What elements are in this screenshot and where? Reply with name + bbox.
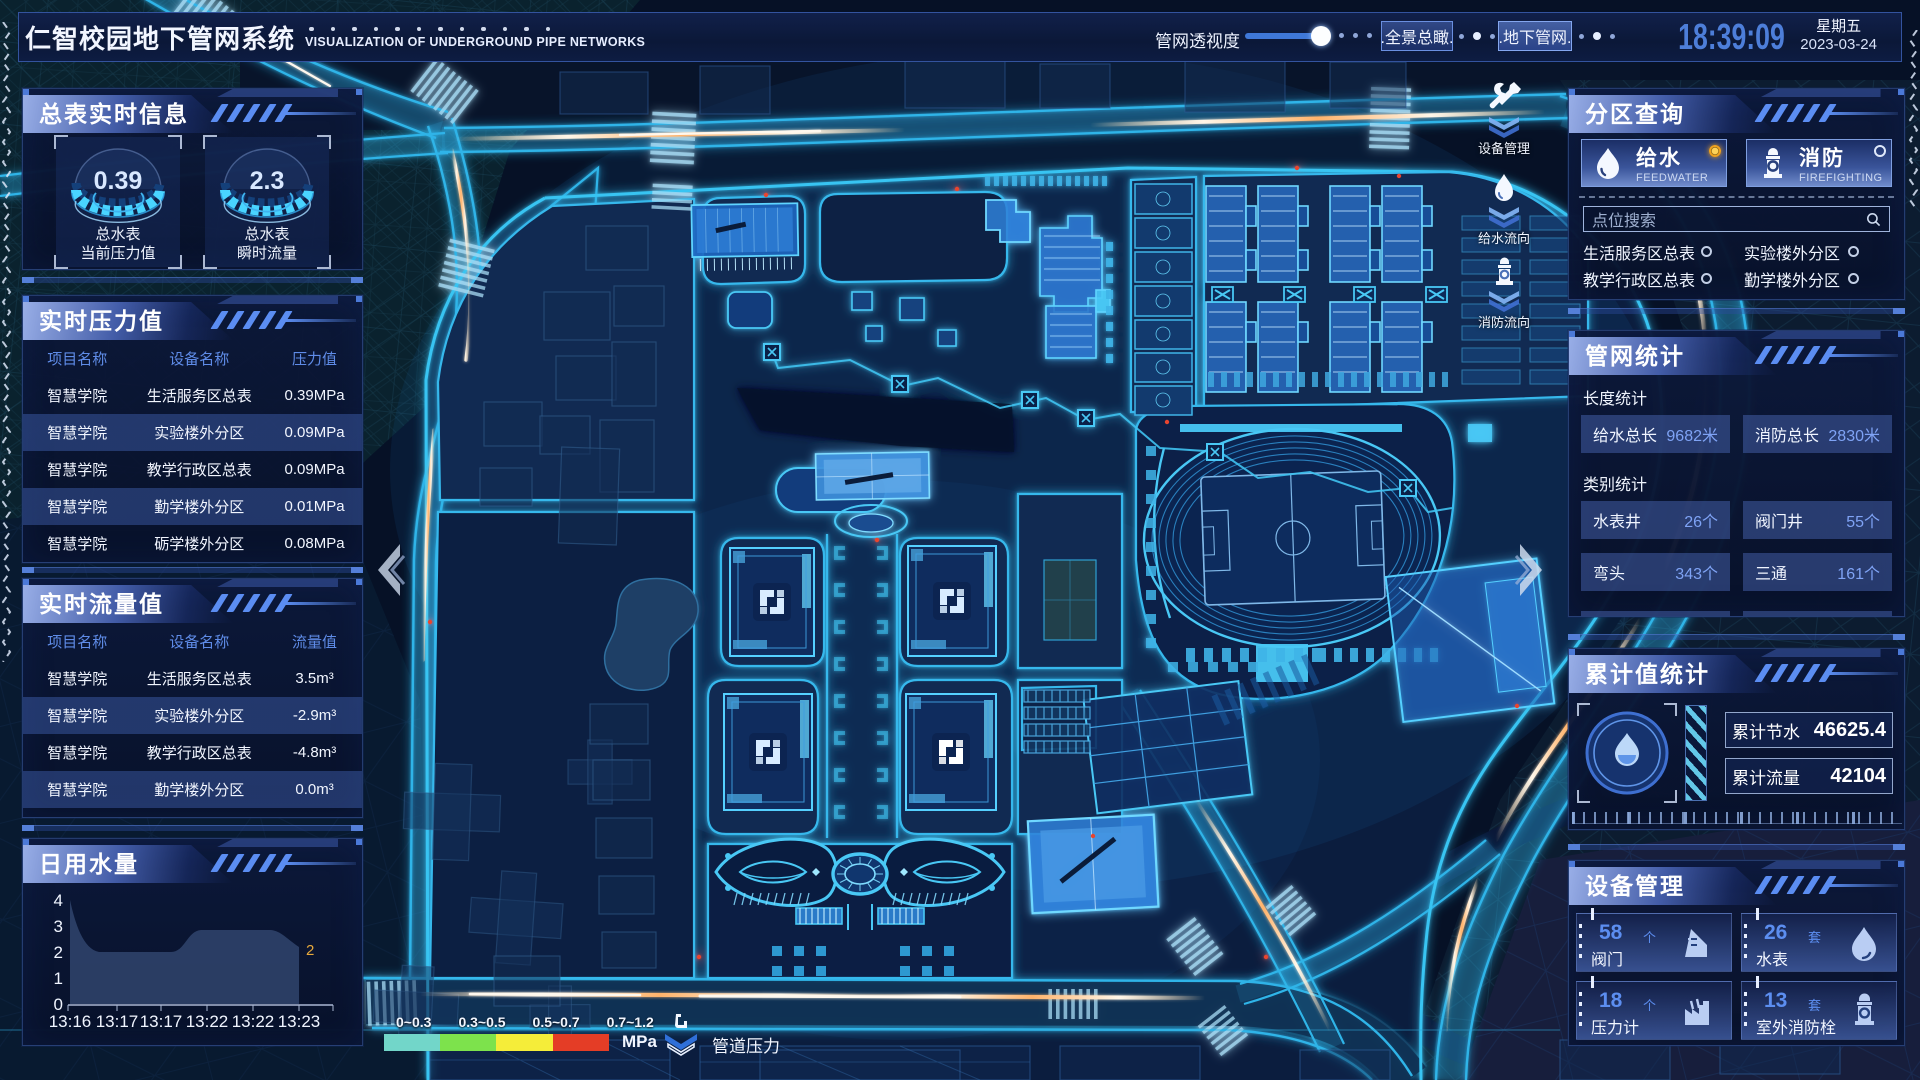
svg-text:13:17: 13:17	[96, 1012, 139, 1031]
svg-text:13:23: 13:23	[278, 1012, 321, 1031]
svg-text:0.39: 0.39	[94, 167, 143, 195]
svg-text:2: 2	[306, 942, 314, 959]
svg-text:3: 3	[54, 917, 63, 936]
svg-text:13:17: 13:17	[140, 1012, 183, 1031]
svg-text:13:16: 13:16	[49, 1012, 92, 1031]
svg-text:2: 2	[54, 943, 63, 962]
svg-text:13:22: 13:22	[232, 1012, 275, 1031]
svg-text:4: 4	[54, 891, 63, 910]
svg-text:1: 1	[54, 969, 63, 988]
svg-text:2.3: 2.3	[250, 167, 285, 195]
svg-text:13:22: 13:22	[186, 1012, 229, 1031]
